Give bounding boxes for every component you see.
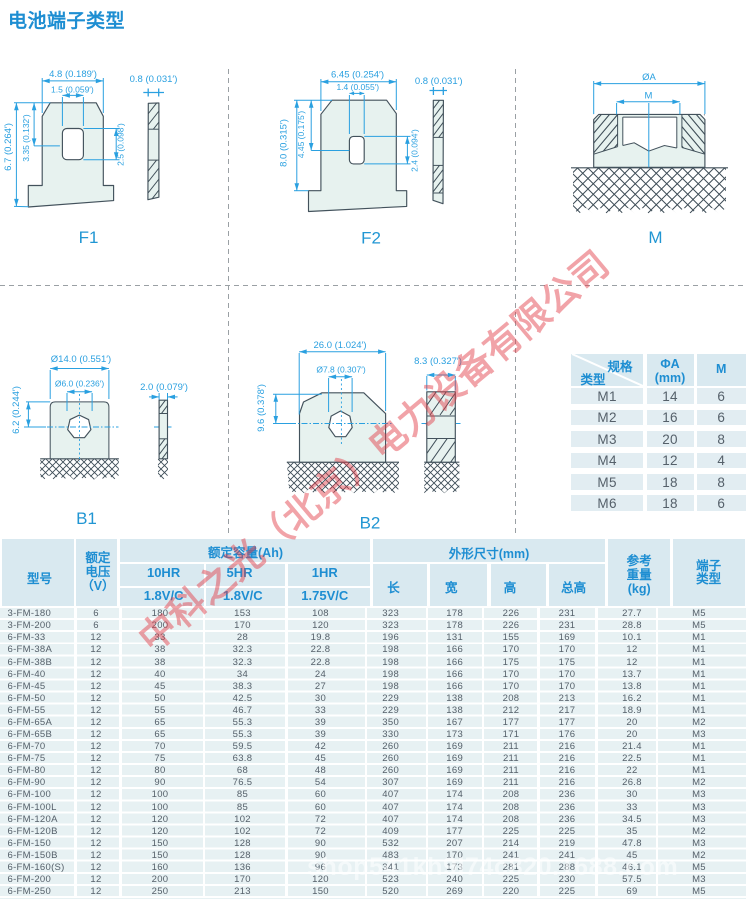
svg-text:F1: F1 xyxy=(79,228,99,247)
svg-text:9.6 (0.378′): 9.6 (0.378′) xyxy=(256,384,267,432)
svg-text:4.8 (0.189′): 4.8 (0.189′) xyxy=(49,69,97,80)
svg-text:M: M xyxy=(645,91,653,102)
svg-text:2.0 (0.079′): 2.0 (0.079′) xyxy=(140,382,188,393)
svg-text:B1: B1 xyxy=(76,509,97,528)
svg-text:4.45 (0.175′): 4.45 (0.175′) xyxy=(296,111,306,159)
svg-text:8.0 (0.315′): 8.0 (0.315′) xyxy=(279,119,290,167)
svg-text:1.5 (0.059′): 1.5 (0.059′) xyxy=(51,85,94,95)
svg-text:6.45 (0.254′): 6.45 (0.254′) xyxy=(331,70,384,81)
svg-text:ØA: ØA xyxy=(642,72,656,83)
svg-text:F2: F2 xyxy=(361,229,381,248)
svg-text:26.0 (1.024′): 26.0 (1.024′) xyxy=(313,340,366,351)
svg-text:0.8 (0.031′): 0.8 (0.031′) xyxy=(415,76,463,87)
svg-text:1.4 (0.055′): 1.4 (0.055′) xyxy=(336,82,379,92)
svg-text:M: M xyxy=(648,228,662,247)
svg-text:Ø7.8 (0.307′): Ø7.8 (0.307′) xyxy=(316,365,365,375)
svg-text:B2: B2 xyxy=(360,514,381,533)
svg-text:Ø14.0 (0.551′): Ø14.0 (0.551′) xyxy=(51,354,111,365)
svg-text:6.2 (0.244′): 6.2 (0.244′) xyxy=(11,386,22,434)
svg-text:6.7 (0.264′): 6.7 (0.264′) xyxy=(3,123,14,171)
svg-text:0.8 (0.031′): 0.8 (0.031′) xyxy=(130,74,178,85)
svg-text:Ø6.0 (0.236′): Ø6.0 (0.236′) xyxy=(55,379,104,389)
svg-text:2.4 (0.094′): 2.4 (0.094′) xyxy=(410,129,420,172)
svg-text:3.35 (0.132′): 3.35 (0.132′) xyxy=(21,114,31,162)
